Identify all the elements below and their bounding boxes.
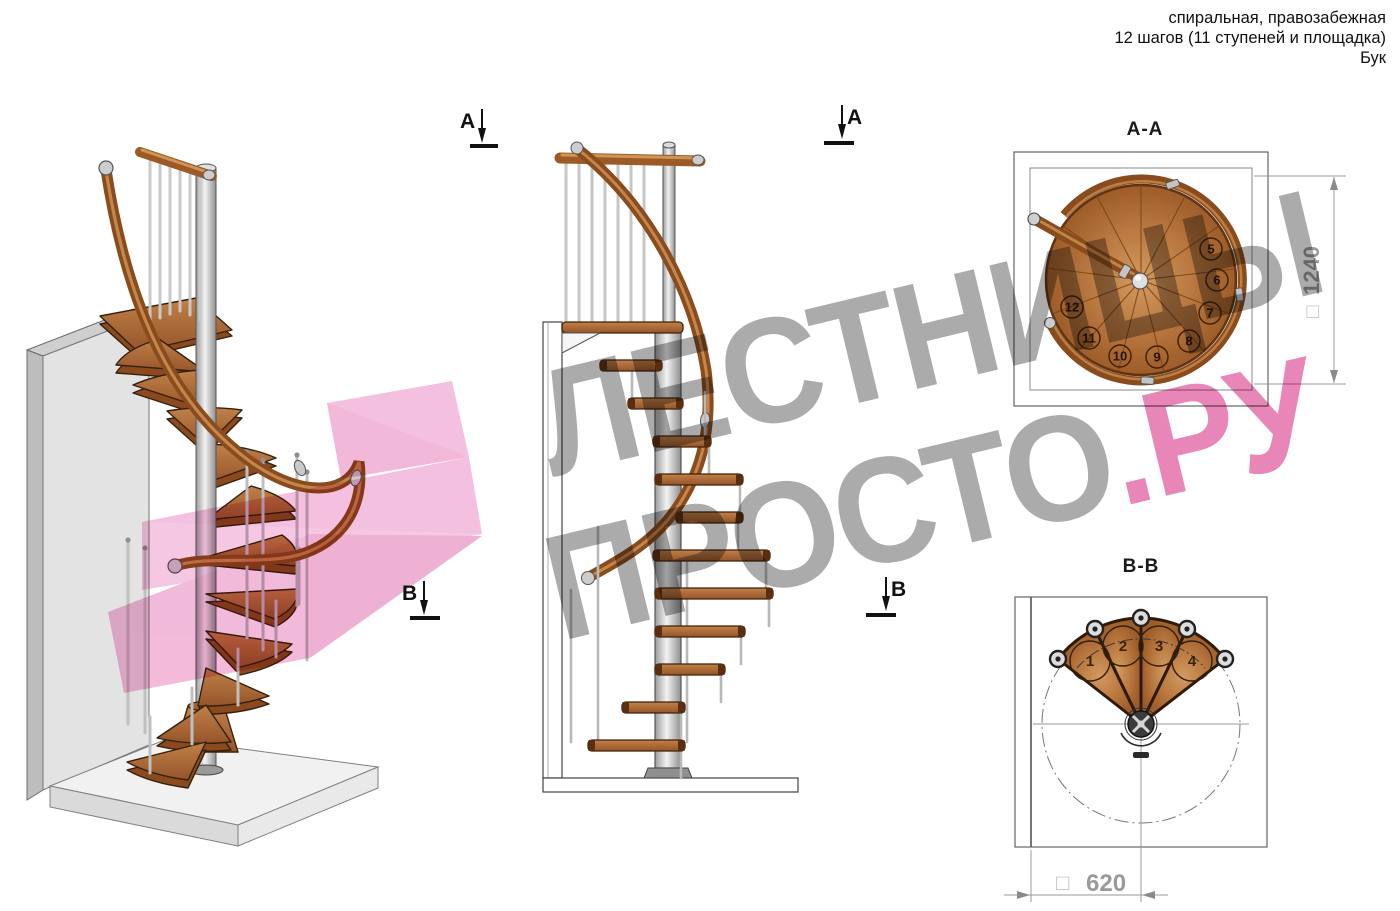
section-marker-a-right: A xyxy=(818,100,866,150)
section-marker-a-left: A xyxy=(454,106,502,154)
elevation-pole-flange xyxy=(644,768,692,778)
step-number: 4 xyxy=(1188,653,1197,670)
elevation-landing-tread xyxy=(562,322,683,333)
marker-letter: A xyxy=(460,110,475,133)
plan-a-pole-top xyxy=(1132,273,1148,289)
dim-arrow-down xyxy=(1330,370,1338,383)
section-marker-b-right: B xyxy=(862,572,910,622)
plan-b-view: 1 2 3 4 □ 620 xyxy=(1000,585,1360,911)
marker-arrow-head xyxy=(882,596,890,611)
marker-letter: A xyxy=(847,106,862,129)
elevation-view xyxy=(528,118,858,808)
elevation-wall xyxy=(543,322,562,778)
marker-letter: B xyxy=(402,582,417,605)
step-number: 1 xyxy=(1086,653,1094,670)
elevation-floor xyxy=(543,778,798,792)
marker-arrow-head xyxy=(478,128,486,143)
elevation-rail-top-cap xyxy=(571,142,583,154)
plan-a-dimension-label: □ 1240 xyxy=(1299,246,1324,318)
step-number: 6 xyxy=(1213,273,1220,288)
dim-arrow-left xyxy=(1142,891,1155,899)
step-number: 9 xyxy=(1153,350,1160,365)
plan-a-title: A-A xyxy=(1090,119,1200,141)
step-number: 12 xyxy=(1065,300,1079,315)
step-number: 3 xyxy=(1155,638,1163,655)
step-number: 11 xyxy=(1082,331,1096,346)
plan-b-dimension-label: □ 620 xyxy=(1056,870,1126,897)
elevation-newel xyxy=(663,145,675,330)
header-material-line: Бук xyxy=(1114,48,1386,68)
plan-a-view: 5 6 7 8 9 10 11 12 □ 1240 xyxy=(1000,140,1360,430)
landing-bracket xyxy=(562,333,600,353)
isometric-view xyxy=(20,95,420,870)
elevation-landing-balusters xyxy=(566,164,644,322)
marker-arrow-head xyxy=(838,124,846,139)
plan-b-title: B-B xyxy=(1086,556,1196,578)
step-number: 5 xyxy=(1207,242,1214,257)
step-number: 7 xyxy=(1206,306,1213,321)
header-steps-line: 12 шагов (11 ступеней и площадка) xyxy=(1114,28,1386,48)
step-number: 8 xyxy=(1185,334,1192,349)
marker-arrow-head xyxy=(420,600,428,615)
step-number: 10 xyxy=(1113,349,1127,364)
dim-arrow-right xyxy=(1017,891,1030,899)
handrail-top-cap xyxy=(99,161,113,175)
marker-letter: B xyxy=(891,578,906,601)
section-marker-b-left: B xyxy=(396,578,444,626)
handrail-bottom-cap xyxy=(168,559,182,573)
elevation-rail-bottom-cap xyxy=(582,572,595,585)
staircase-drawing-page: { "header": { "line1": "спиральная, прав… xyxy=(0,0,1400,911)
ring-end-cap xyxy=(1045,318,1056,329)
step-number: 2 xyxy=(1119,638,1127,655)
dim-arrow-up xyxy=(1330,177,1338,190)
wall-panel xyxy=(27,309,149,800)
header-type-line: спиральная, правозабежная xyxy=(1114,8,1386,28)
drawing-header: спиральная, правозабежная 12 шагов (11 с… xyxy=(1114,8,1386,68)
